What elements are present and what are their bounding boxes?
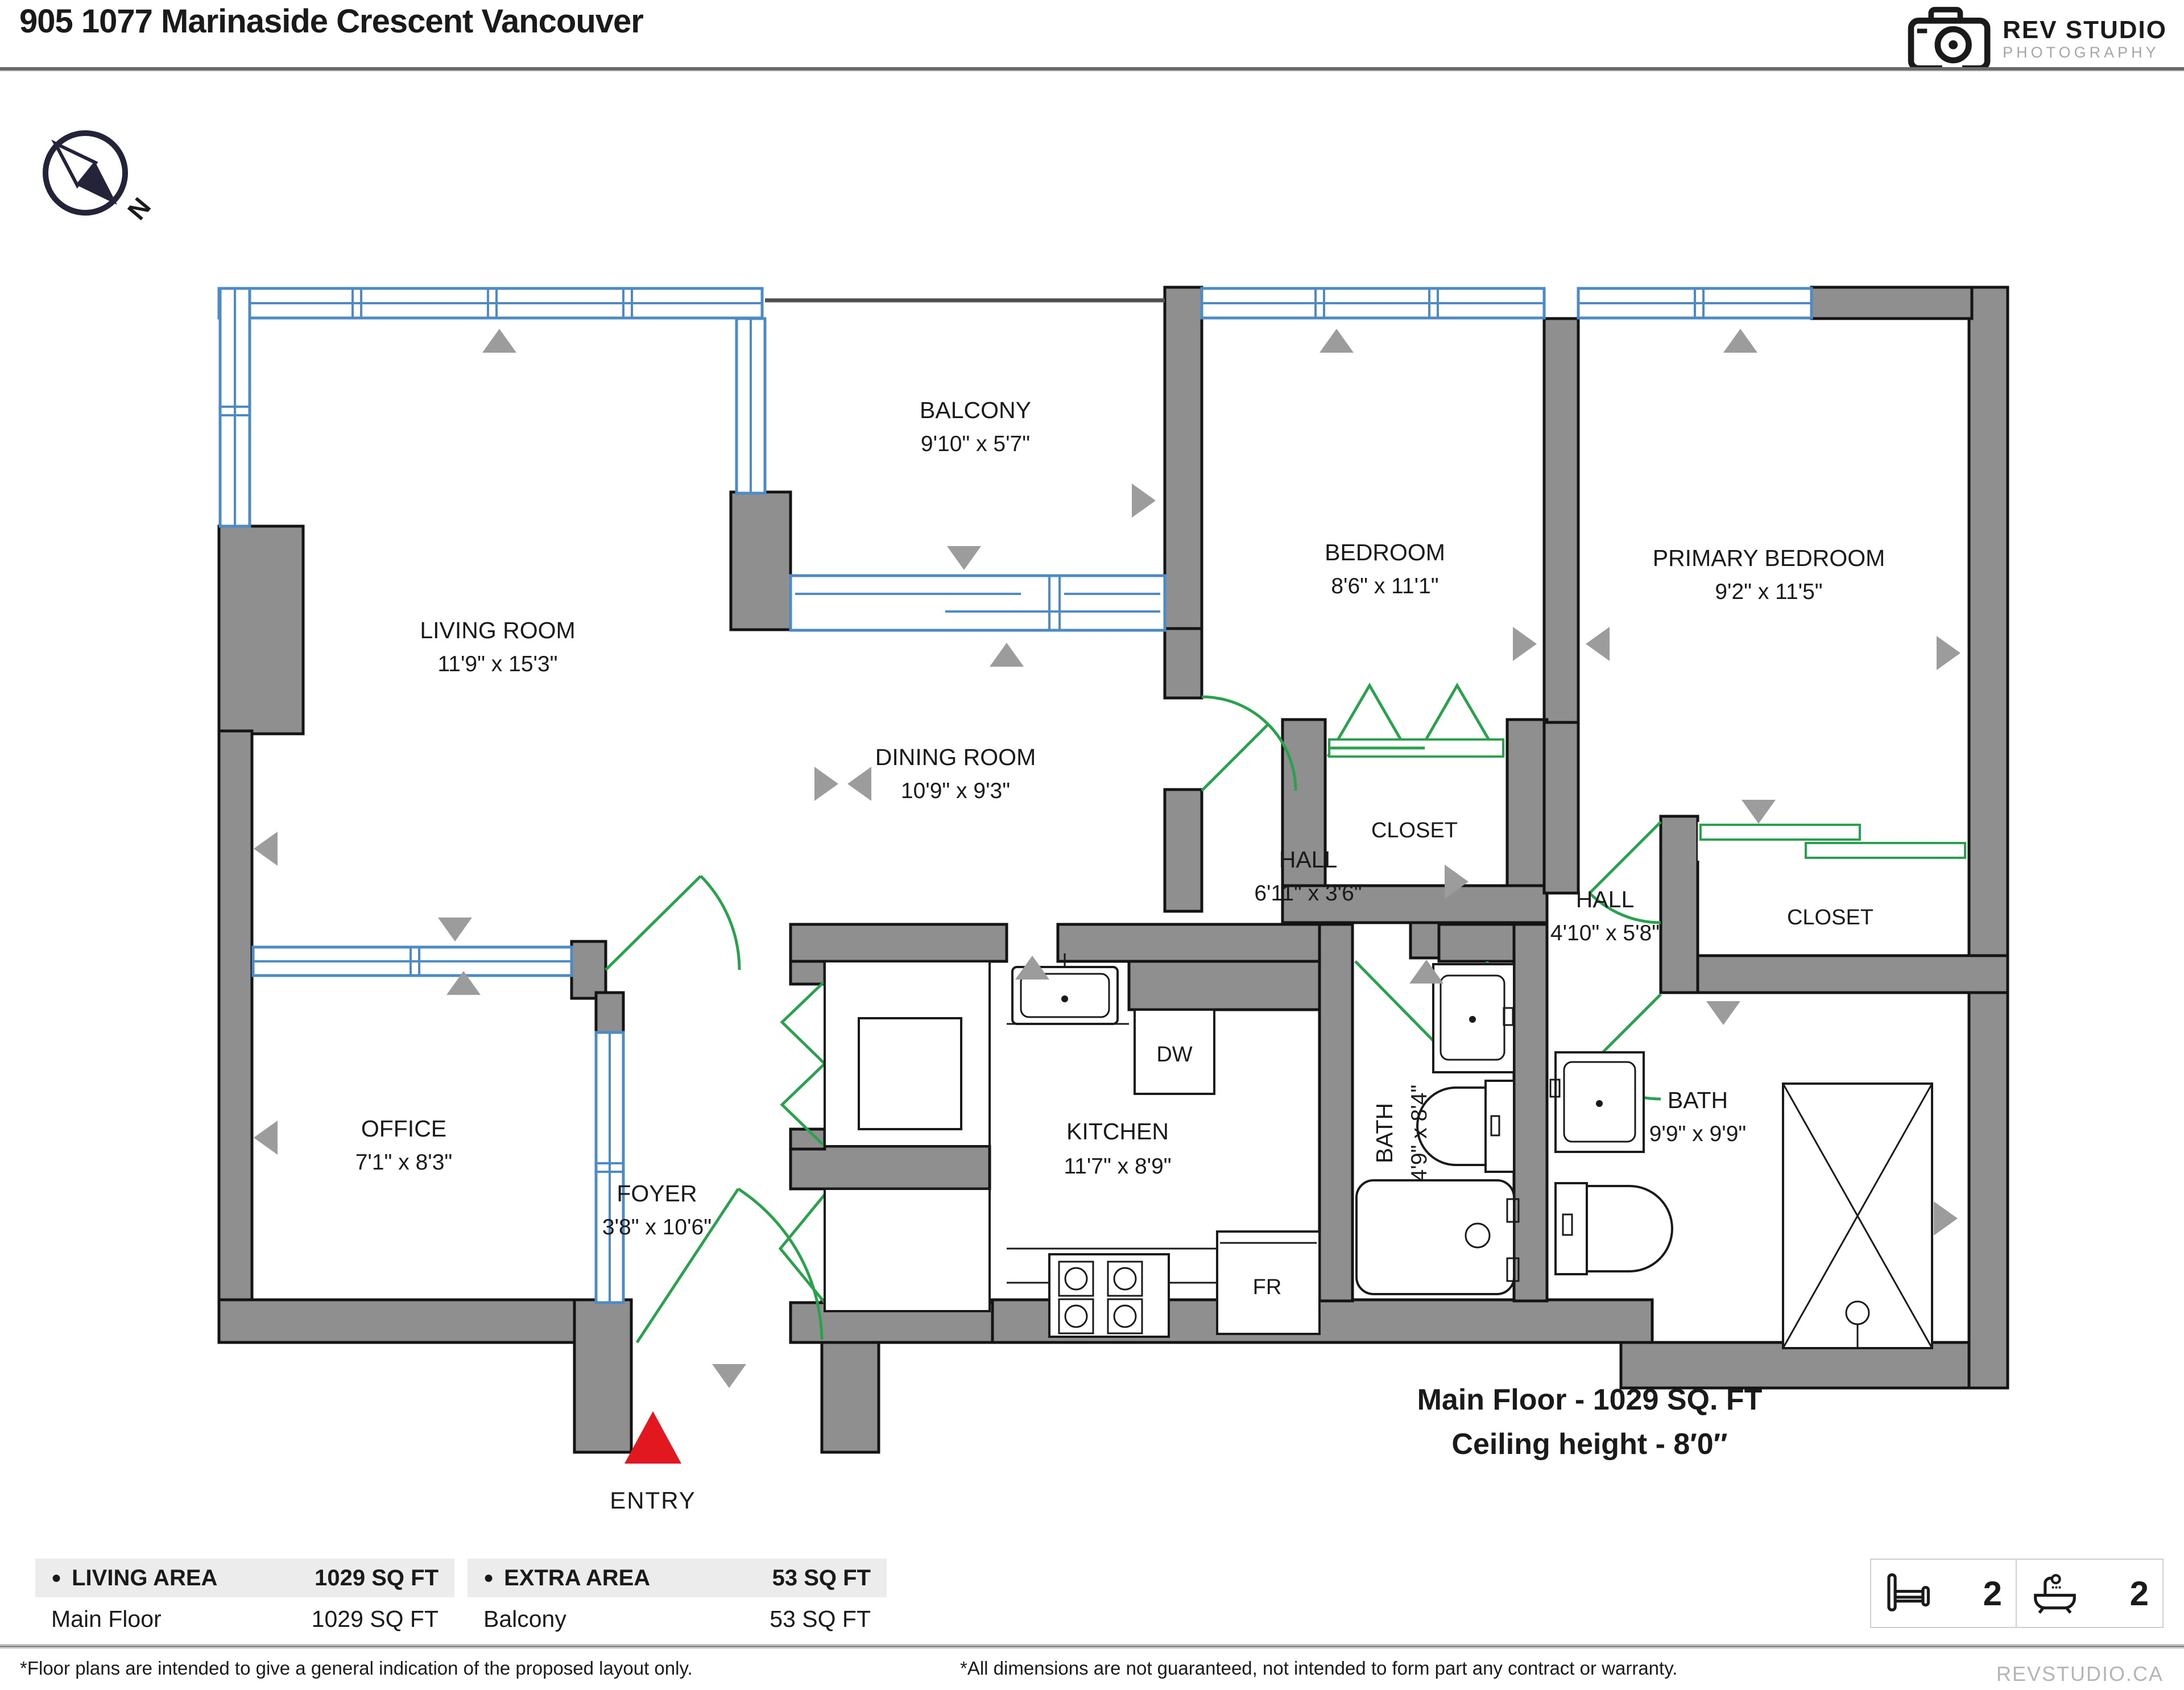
bed-icon (1885, 1573, 1934, 1614)
balcony-slider (791, 576, 1165, 630)
dining-room-label: DINING ROOM (875, 744, 1036, 770)
hall1-dims: 6'11" x 3'6" (1254, 881, 1362, 906)
bullet-icon: ● (483, 1568, 494, 1588)
stove-icon (1049, 1254, 1169, 1337)
balcony-dims: 9'10" x 5'7" (921, 432, 1030, 456)
compass-north-label: N (122, 192, 156, 225)
shower-icon (1783, 1084, 1932, 1348)
bathtub-icon (2030, 1573, 2079, 1614)
entry-label: ENTRY (610, 1487, 696, 1514)
living-area-row-label: Main Floor (51, 1606, 162, 1633)
entry-arrow-icon (624, 1411, 681, 1464)
extra-area-header-label: EXTRA AREA (504, 1565, 650, 1591)
primary-closet-label: CLOSET (1787, 906, 1873, 929)
bath2-toilet-icon (1556, 1183, 1672, 1274)
bedroom-count: 2 (1983, 1574, 2002, 1613)
balcony-label: BALCONY (920, 397, 1031, 423)
kitchen-dims: 11'7" x 8'9" (1064, 1154, 1171, 1179)
bath2-label: BATH (1668, 1087, 1728, 1113)
website-label: REVSTUDIO.CA (1996, 1662, 2164, 1686)
living-area-header-label: LIVING AREA (72, 1565, 217, 1591)
hall2-dims: 4'10" x 5'8" (1550, 921, 1660, 945)
table-row: Balcony 53 SQ FT (468, 1597, 887, 1641)
bath1-sink-icon (1433, 964, 1514, 1072)
living-area-row-value: 1029 SQ FT (312, 1606, 439, 1633)
cl-closet-box (825, 1189, 990, 1311)
primary-closet-slider (1698, 822, 1967, 861)
office-dims: 7'1" x 8'3" (355, 1150, 453, 1175)
kitchen-label: KITCHEN (1066, 1118, 1169, 1144)
hall1-label: HALL (1279, 846, 1338, 873)
primary-bedroom-dims: 9'2" x 11'5" (1715, 580, 1822, 604)
disclaimer-dimensions: *All dimensions are not guaranteed, not … (960, 1658, 1677, 1679)
bathroom-count-badge: 2 (2017, 1559, 2164, 1628)
dining-room-dims: 10'9" x 9'3" (901, 779, 1010, 803)
wd-unit-box (859, 1018, 961, 1129)
living-area-header: ● LIVING AREA 1029 SQ FT (35, 1559, 454, 1597)
extra-area-row-value: 53 SQ FT (770, 1606, 871, 1633)
dishwasher-label: DW (1156, 1043, 1192, 1067)
foyer-dims: 3'8" x 10'6" (602, 1215, 712, 1239)
fixtures (1007, 953, 1932, 1348)
floor-area-text: Main Floor - 1029 SQ. FT (1417, 1383, 1763, 1416)
bedroom-dims: 8'6" x 11'1" (1331, 574, 1438, 598)
room-labels: LIVING ROOM 11'9" x 15'3" DINING ROOM 10… (355, 397, 1885, 1299)
extra-area-table: ● EXTRA AREA 53 SQ FT Balcony 53 SQ FT (468, 1559, 887, 1641)
bath2-sink-icon (1550, 1052, 1644, 1152)
cl-bifold-door (780, 1195, 825, 1303)
table-row: Main Floor 1029 SQ FT (35, 1597, 454, 1641)
bath2-dims: 9'9" x 9'9" (1649, 1122, 1747, 1146)
living-room-label: LIVING ROOM (420, 617, 575, 643)
living-room-dims: 11'9" x 15'3" (438, 652, 558, 676)
bath1-dims: 4'9" x 8'4" (1407, 1085, 1432, 1182)
primary-bedroom-label: PRIMARY BEDROOM (1653, 545, 1885, 571)
office-label: OFFICE (361, 1115, 446, 1142)
floor-summary: Main Floor - 1029 SQ. FT Ceiling height … (1417, 1383, 1763, 1461)
bedroom-closet-label: CLOSET (1371, 819, 1458, 842)
bathroom-count: 2 (2130, 1574, 2149, 1613)
extra-area-row-label: Balcony (483, 1606, 566, 1633)
bath1-tub-icon (1356, 1180, 1519, 1294)
living-area-table: ● LIVING AREA 1029 SQ FT Main Floor 1029… (35, 1559, 454, 1641)
disclaimer-layout: *Floor plans are intended to give a gene… (20, 1658, 693, 1679)
bath1-label: BATH (1371, 1103, 1397, 1163)
hall2-label: HALL (1576, 886, 1635, 912)
footer-divider (0, 1644, 2184, 1649)
foyer-label: FOYER (617, 1180, 697, 1206)
bath1-toilet-icon (1417, 1081, 1514, 1172)
extra-area-header-value: 53 SQ FT (772, 1565, 871, 1591)
extra-area-header: ● EXTRA AREA 53 SQ FT (468, 1559, 887, 1597)
bedroom-label: BEDROOM (1325, 539, 1445, 565)
compass-icon: N (45, 133, 156, 225)
wd-bifold-door (782, 981, 825, 1146)
floor-plan: N (0, 0, 2184, 1690)
ceiling-height-text: Ceiling height - 8′0″ (1451, 1428, 1727, 1461)
fridge-label: FR (1253, 1275, 1282, 1299)
stats-badges: 2 2 (1870, 1559, 2164, 1628)
bedroom-count-badge: 2 (1870, 1559, 2017, 1628)
living-area-header-value: 1029 SQ FT (315, 1565, 439, 1591)
bullet-icon: ● (51, 1568, 61, 1588)
